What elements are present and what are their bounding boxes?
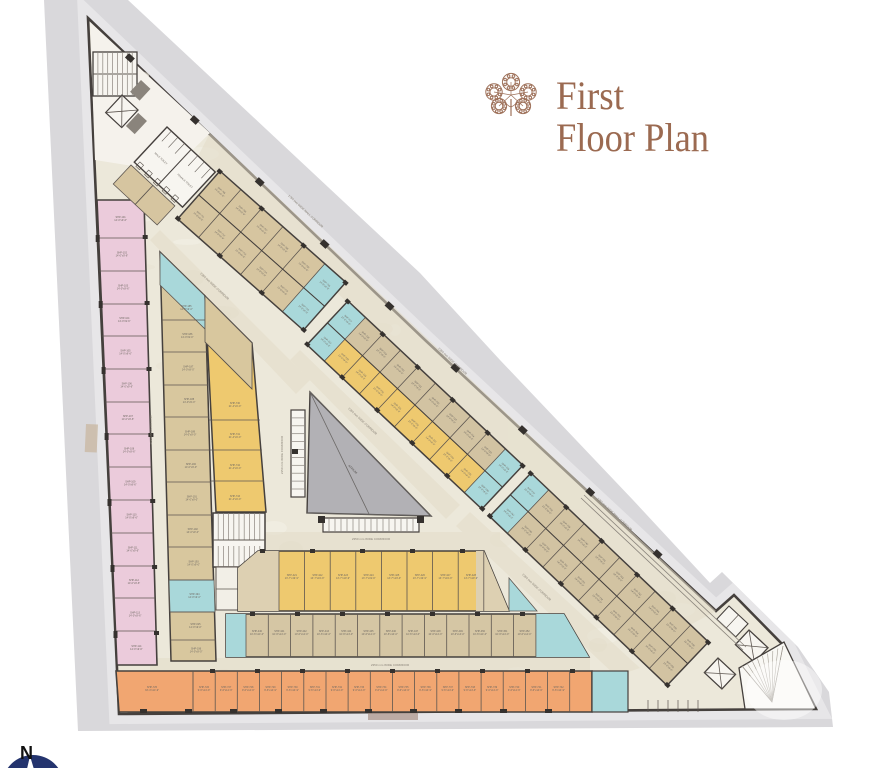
svg-text:SHP-42513'-7"x19'-9": SHP-42513'-7"x19'-9" bbox=[387, 574, 401, 580]
svg-text:SHP-74321'-4"x9'-0": SHP-74321'-4"x9'-0" bbox=[229, 495, 242, 501]
svg-text:SHP-19614'-0"x9'-0": SHP-19614'-0"x9'-0" bbox=[190, 648, 203, 654]
svg-text:SHP-18514'-0"x9'-0": SHP-18514'-0"x9'-0" bbox=[180, 305, 193, 311]
svg-text:SHP-19114'-0"x9'-0": SHP-19114'-0"x9'-0" bbox=[185, 496, 198, 502]
svg-text:SHP-45010'-6"x14'-0": SHP-45010'-6"x14'-0" bbox=[473, 630, 487, 636]
svg-text:SHP-42113'-7"x19'-9": SHP-42113'-7"x19'-9" bbox=[285, 574, 299, 580]
svg-text:SHP-42313'-7"x19'-9": SHP-42313'-7"x19'-9" bbox=[336, 574, 350, 580]
svg-text:SHP-44410'-6"x14'-0": SHP-44410'-6"x14'-0" bbox=[339, 630, 353, 636]
svg-text:SHP-18914'-0"x9'-0": SHP-18914'-0"x9'-0" bbox=[184, 431, 197, 437]
svg-text:SHP-7399'-6"x14'-9": SHP-7399'-6"x14'-9" bbox=[486, 686, 499, 692]
svg-text:2350 mm WIDE CORRIDOR: 2350 mm WIDE CORRIDOR bbox=[352, 537, 391, 541]
svg-text:SHP-18614'-0"x9'-0": SHP-18614'-0"x9'-0" bbox=[181, 333, 194, 339]
svg-text:SHP-42413'-7"x19'-9": SHP-42413'-7"x19'-9" bbox=[362, 574, 376, 580]
svg-text:SHP-18714'-0"x9'-0": SHP-18714'-0"x9'-0" bbox=[182, 366, 195, 372]
svg-text:SHP-7379'-6"x14'-9": SHP-7379'-6"x14'-9" bbox=[441, 686, 454, 692]
svg-text:SHP-7349'-6"x14'-9": SHP-7349'-6"x14'-9" bbox=[375, 686, 388, 692]
svg-text:SHP-72533'-4"x14'-9": SHP-72533'-4"x14'-9" bbox=[145, 686, 159, 692]
svg-text:SHP-74021'-4"x9'-0": SHP-74021'-4"x9'-0" bbox=[229, 402, 242, 408]
svg-text:SHP-7359'-6"x14'-9": SHP-7359'-6"x14'-9" bbox=[397, 686, 410, 692]
svg-text:SHP-11214'-0"x9'-6": SHP-11214'-0"x9'-6" bbox=[128, 579, 141, 585]
svg-text:First: First bbox=[556, 73, 624, 118]
svg-text:SHP-11314'-0"x9'-6": SHP-11314'-0"x9'-6" bbox=[129, 612, 142, 618]
svg-text:SHP-10914'-0"x9'-6": SHP-10914'-0"x9'-6" bbox=[124, 481, 137, 487]
svg-text:SHP-44010'-6"x14'-0": SHP-44010'-6"x14'-0" bbox=[250, 630, 264, 636]
svg-text:SHP-7409'-6"x14'-9": SHP-7409'-6"x14'-9" bbox=[508, 686, 521, 692]
svg-text:SHP-7369'-6"x14'-9": SHP-7369'-6"x14'-9" bbox=[419, 686, 432, 692]
svg-text:SHP-10314'-0"x9'-6": SHP-10314'-0"x9'-6" bbox=[117, 285, 130, 291]
svg-text:SHP-44910'-6"x14'-0": SHP-44910'-6"x14'-0" bbox=[451, 630, 465, 636]
svg-text:SHP-45210'-6"x14'-0": SHP-45210'-6"x14'-0" bbox=[518, 630, 532, 636]
svg-text:SHP-42713'-7"x19'-9": SHP-42713'-7"x19'-9" bbox=[438, 574, 452, 580]
svg-text:SHP-11414'-0"x9'-6": SHP-11414'-0"x9'-6" bbox=[130, 645, 143, 651]
svg-text:SHP-44810'-6"x14'-0": SHP-44810'-6"x14'-0" bbox=[428, 630, 442, 636]
svg-text:SHP-44110'-6"x14'-0": SHP-44110'-6"x14'-0" bbox=[272, 630, 286, 636]
svg-text:SHP-74121'-4"x9'-0": SHP-74121'-4"x9'-0" bbox=[229, 433, 242, 439]
svg-text:SHP-19414'-0"x9'-0": SHP-19414'-0"x9'-0" bbox=[188, 593, 201, 599]
svg-text:SHP-18814'-0"x9'-0": SHP-18814'-0"x9'-0" bbox=[183, 398, 196, 404]
svg-text:Floor Plan: Floor Plan bbox=[556, 115, 709, 160]
svg-text:SHP-19314'-0"x9'-0": SHP-19314'-0"x9'-0" bbox=[187, 561, 200, 567]
svg-text:SHP-44710'-6"x14'-0": SHP-44710'-6"x14'-0" bbox=[406, 630, 420, 636]
svg-text:SHP-11114'-0"x9'-6": SHP-11114'-0"x9'-6" bbox=[126, 547, 139, 553]
svg-text:SHP-7289'-6"x14'-9": SHP-7289'-6"x14'-9" bbox=[242, 686, 255, 692]
svg-text:SHP-19214'-0"x9'-0": SHP-19214'-0"x9'-0" bbox=[186, 528, 199, 534]
svg-text:SHP-10714'-0"x9'-6": SHP-10714'-0"x9'-6" bbox=[122, 415, 135, 421]
svg-text:SHP-44310'-6"x14'-0": SHP-44310'-6"x14'-0" bbox=[317, 630, 331, 636]
svg-text:SHP-10614'-0"x9'-6": SHP-10614'-0"x9'-6" bbox=[120, 383, 133, 389]
svg-text:SHP-19514'-0"x9'-0": SHP-19514'-0"x9'-0" bbox=[189, 623, 202, 629]
svg-text:SHP-44210'-6"x14'-0": SHP-44210'-6"x14'-0" bbox=[295, 630, 309, 636]
svg-text:SHP-42613'-7"x19'-9": SHP-42613'-7"x19'-9" bbox=[413, 574, 427, 580]
svg-text:SHP-7339'-6"x14'-9": SHP-7339'-6"x14'-9" bbox=[353, 686, 366, 692]
svg-text:SHP-42813'-7"x19'-9": SHP-42813'-7"x19'-9" bbox=[464, 574, 478, 580]
svg-text:2350 mm WIDE CORRIDOR: 2350 mm WIDE CORRIDOR bbox=[280, 435, 284, 474]
svg-text:SHP-42213'-7"x19'-9": SHP-42213'-7"x19'-9" bbox=[310, 574, 324, 580]
svg-text:SHP-7389'-6"x14'-9": SHP-7389'-6"x14'-9" bbox=[464, 686, 477, 692]
svg-text:SHP-7309'-6"x14'-9": SHP-7309'-6"x14'-9" bbox=[286, 686, 299, 692]
svg-text:ACCENT CORRIDOR: ACCENT CORRIDOR bbox=[149, 414, 153, 444]
svg-text:SHP-44610'-6"x14'-0": SHP-44610'-6"x14'-0" bbox=[384, 630, 398, 636]
svg-text:SHP-11014'-0"x9'-6": SHP-11014'-0"x9'-6" bbox=[125, 514, 138, 520]
svg-text:N: N bbox=[20, 743, 33, 763]
svg-text:SHP-10414'-0"x9'-6": SHP-10414'-0"x9'-6" bbox=[118, 317, 131, 323]
svg-text:SHP-7419'-6"x14'-9": SHP-7419'-6"x14'-9" bbox=[530, 686, 543, 692]
svg-text:SHP-44510'-6"x14'-0": SHP-44510'-6"x14'-0" bbox=[362, 630, 376, 636]
svg-text:SHP-7429'-6"x14'-9": SHP-7429'-6"x14'-9" bbox=[552, 686, 565, 692]
svg-text:SHP-7329'-6"x14'-9": SHP-7329'-6"x14'-9" bbox=[331, 686, 344, 692]
svg-text:SHP-45110'-6"x14'-0": SHP-45110'-6"x14'-0" bbox=[495, 630, 509, 636]
svg-text:SHP-10214'-0"x9'-6": SHP-10214'-0"x9'-6" bbox=[116, 252, 129, 258]
svg-text:SHP-7279'-6"x14'-9": SHP-7279'-6"x14'-9" bbox=[220, 686, 233, 692]
svg-text:SHP-7299'-6"x14'-9": SHP-7299'-6"x14'-9" bbox=[264, 686, 277, 692]
svg-text:2350 mm WIDE CORRIDOR: 2350 mm WIDE CORRIDOR bbox=[371, 663, 410, 667]
svg-text:SHP-7319'-6"x14'-9": SHP-7319'-6"x14'-9" bbox=[308, 686, 321, 692]
svg-text:SHP-10814'-0"x9'-6": SHP-10814'-0"x9'-6" bbox=[123, 448, 136, 454]
svg-text:SHP-74221'-4"x9'-0": SHP-74221'-4"x9'-0" bbox=[229, 464, 242, 470]
svg-text:SHP-19014'-0"x9'-0": SHP-19014'-0"x9'-0" bbox=[185, 463, 198, 469]
svg-text:SHP-10114'-0"x9'-6": SHP-10114'-0"x9'-6" bbox=[114, 216, 127, 222]
svg-text:SHP-7269'-6"x14'-9": SHP-7269'-6"x14'-9" bbox=[198, 686, 211, 692]
svg-text:SHP-10514'-0"x9'-6": SHP-10514'-0"x9'-6" bbox=[119, 350, 132, 356]
